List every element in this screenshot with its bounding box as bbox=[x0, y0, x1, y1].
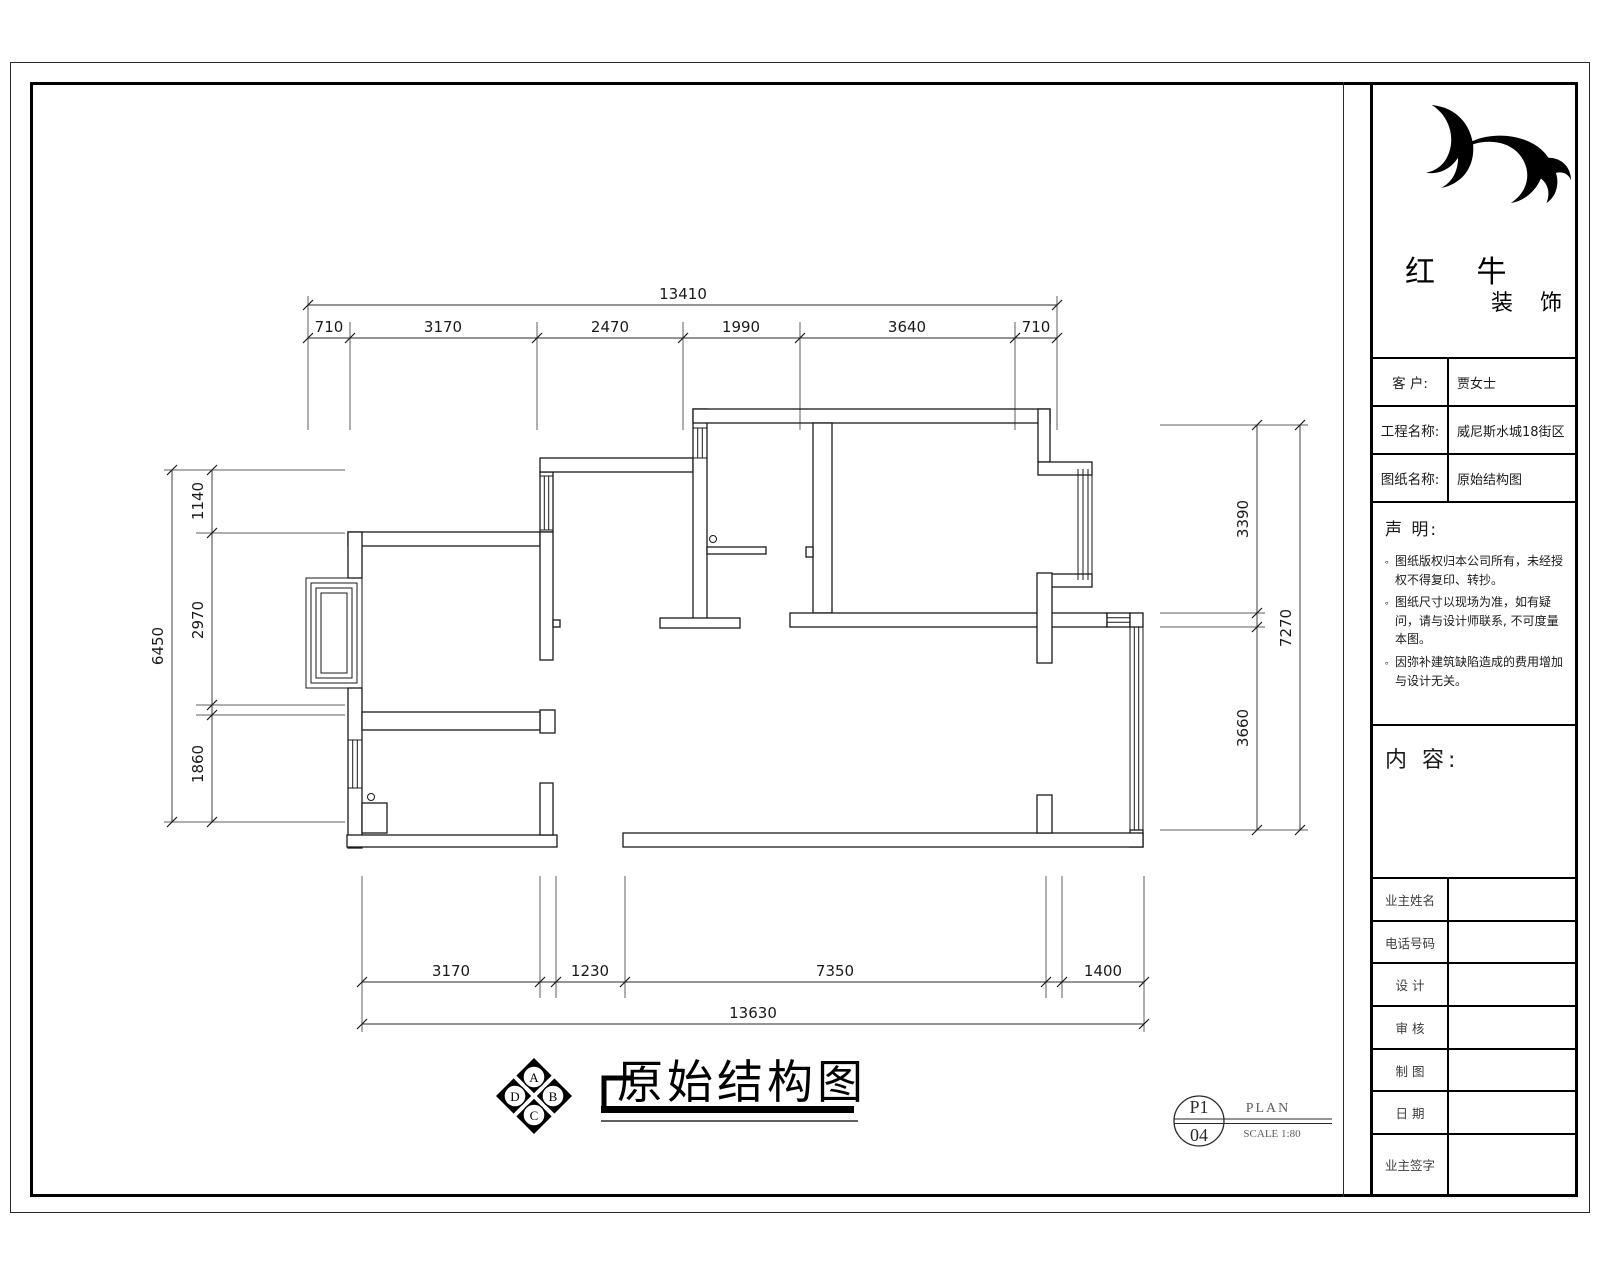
dim-bottom-seg-3: 1400 bbox=[1084, 962, 1122, 980]
reviewer-label: 审 核 bbox=[1373, 1007, 1449, 1048]
designer-label: 设 计 bbox=[1373, 964, 1449, 1005]
floor-plan-canvas: 13410 710 3170 2470 1990 3640 710 3170 1… bbox=[0, 0, 1600, 1280]
plan-stamp: P1 04 PLAN SCALE 1:80 bbox=[1174, 1096, 1332, 1146]
window-livingroom-right bbox=[1130, 627, 1143, 830]
owner-name-field bbox=[1449, 879, 1575, 920]
declaration-item-text: 图纸版权归本公司所有，未经授权不得复印、转抄。 bbox=[1395, 552, 1567, 589]
drafter-label: 制 图 bbox=[1373, 1050, 1449, 1091]
company-logo-icon bbox=[1411, 95, 1571, 245]
dim-right-seg-1: 3660 bbox=[1234, 709, 1252, 747]
declaration-item: 。 图纸版权归本公司所有，未经授权不得复印、转抄。 bbox=[1385, 552, 1567, 589]
project-name-value: 威尼斯水城18街区 bbox=[1449, 407, 1575, 453]
detail-circle-kitchen bbox=[368, 794, 375, 801]
customer-label: 客 户: bbox=[1373, 359, 1449, 405]
project-name-label: 工程名称: bbox=[1373, 407, 1449, 453]
date-label: 日 期 bbox=[1373, 1092, 1449, 1133]
dim-left-seg-0: 1140 bbox=[189, 482, 207, 520]
dim-bottom-seg-2: 7350 bbox=[816, 962, 854, 980]
content-label: 内 容: bbox=[1385, 742, 1575, 774]
date-field bbox=[1449, 1092, 1575, 1133]
signature-table: 业主姓名 电话号码 设 计 审 核 制 图 日 期 业主签字 bbox=[1373, 879, 1575, 1194]
phone-label: 电话号码 bbox=[1373, 922, 1449, 963]
flue-box bbox=[362, 803, 387, 833]
project-name-row: 工程名称: 威尼斯水城18街区 bbox=[1373, 407, 1575, 455]
declaration-item-text: 因弥补建筑缺陷造成的费用增加与设计无关。 bbox=[1395, 653, 1567, 690]
compass-letter-a: A bbox=[529, 1070, 539, 1085]
customer-row: 客 户: 贾女士 bbox=[1373, 359, 1575, 407]
reviewer-field bbox=[1449, 1007, 1575, 1048]
dim-bottom-seg-1: 1230 bbox=[571, 962, 609, 980]
phone-field bbox=[1449, 922, 1575, 963]
owner-name-label: 业主姓名 bbox=[1373, 879, 1449, 920]
dim-bottom-overall: 13630 bbox=[729, 1004, 777, 1022]
declaration-item-text: 图纸尺寸以现场为准，如有疑问，请与设计师联系, 不可度量本图。 bbox=[1395, 593, 1567, 649]
dimension-right: 3390 3660 7270 bbox=[1160, 420, 1308, 835]
declaration-item: 。 图纸尺寸以现场为准，如有疑问，请与设计师联系, 不可度量本图。 bbox=[1385, 593, 1567, 649]
dim-top-seg-4: 3640 bbox=[888, 318, 926, 336]
sheet-name-row: 图纸名称: 原始结构图 bbox=[1373, 455, 1575, 503]
title-block: 红 牛 装 饰 客 户: 贾女士 工程名称: 威尼斯水城18街区 图纸名称: 原… bbox=[1370, 82, 1578, 1197]
sheet-name-label: 图纸名称: bbox=[1373, 455, 1449, 501]
dim-right-overall: 7270 bbox=[1277, 609, 1295, 647]
drafter-field bbox=[1449, 1050, 1575, 1091]
dim-right-seg-0: 3390 bbox=[1234, 500, 1252, 538]
table-row: 制 图 bbox=[1373, 1050, 1575, 1093]
stamp-scale: SCALE 1:80 bbox=[1243, 1128, 1301, 1140]
dim-top-seg-0: 710 bbox=[315, 318, 344, 336]
company-logo-area: 红 牛 装 饰 bbox=[1373, 85, 1575, 359]
dim-bottom-seg-0: 3170 bbox=[432, 962, 470, 980]
stamp-code: P1 bbox=[1189, 1097, 1208, 1117]
content-section: 内 容: bbox=[1373, 726, 1575, 879]
stamp-label: PLAN bbox=[1246, 1101, 1291, 1116]
owner-signature-label: 业主签字 bbox=[1373, 1135, 1449, 1194]
customer-value: 贾女士 bbox=[1449, 359, 1575, 405]
table-row: 电话号码 bbox=[1373, 922, 1575, 965]
sheet-name-value: 原始结构图 bbox=[1449, 455, 1575, 501]
dim-top-seg-2: 2470 bbox=[591, 318, 629, 336]
compass-letter-b: B bbox=[549, 1089, 558, 1104]
compass-letter-d: D bbox=[510, 1089, 519, 1104]
designer-field bbox=[1449, 964, 1575, 1005]
orientation-symbol: A B C D bbox=[496, 1058, 572, 1134]
dimension-bottom: 3170 1230 7350 1400 13630 bbox=[357, 876, 1149, 1032]
declaration-title: 声 明: bbox=[1385, 515, 1567, 540]
dim-top-overall: 13410 bbox=[659, 285, 707, 303]
table-row: 设 计 bbox=[1373, 964, 1575, 1007]
table-row: 日 期 bbox=[1373, 1092, 1575, 1135]
dim-top-seg-1: 3170 bbox=[424, 318, 462, 336]
bullet-mark: 。 bbox=[1385, 593, 1395, 649]
company-name-2: 装 饰 bbox=[1491, 285, 1572, 317]
floor-plan-walls bbox=[347, 409, 1143, 848]
dim-top-seg-5: 710 bbox=[1022, 318, 1051, 336]
compass-letter-c: C bbox=[530, 1108, 539, 1123]
table-row: 审 核 bbox=[1373, 1007, 1575, 1050]
bullet-mark: 。 bbox=[1385, 552, 1395, 589]
dim-left-seg-1: 2970 bbox=[189, 601, 207, 639]
table-row: 业主签字 bbox=[1373, 1135, 1575, 1194]
bay-window-left bbox=[306, 578, 362, 688]
declaration-item: 。 因弥补建筑缺陷造成的费用增加与设计无关。 bbox=[1385, 653, 1567, 690]
bullet-mark: 。 bbox=[1385, 653, 1395, 690]
owner-signature-field bbox=[1449, 1135, 1575, 1194]
drawing-title: 原始结构图 bbox=[601, 1055, 867, 1121]
table-row: 业主姓名 bbox=[1373, 879, 1575, 922]
bay-window-right bbox=[1078, 462, 1092, 587]
dim-top-seg-3: 1990 bbox=[722, 318, 760, 336]
dim-left-seg-2: 1860 bbox=[189, 745, 207, 783]
drawing-title-text: 原始结构图 bbox=[617, 1055, 867, 1109]
declaration-section: 声 明: 。 图纸版权归本公司所有，未经授权不得复印、转抄。 。 图纸尺寸以现场… bbox=[1373, 503, 1575, 726]
detail-circle-door bbox=[710, 536, 717, 543]
dim-left-overall: 6450 bbox=[149, 627, 167, 665]
dimension-top: 13410 710 3170 2470 1990 3640 710 bbox=[303, 285, 1062, 430]
stamp-number: 04 bbox=[1190, 1125, 1208, 1145]
